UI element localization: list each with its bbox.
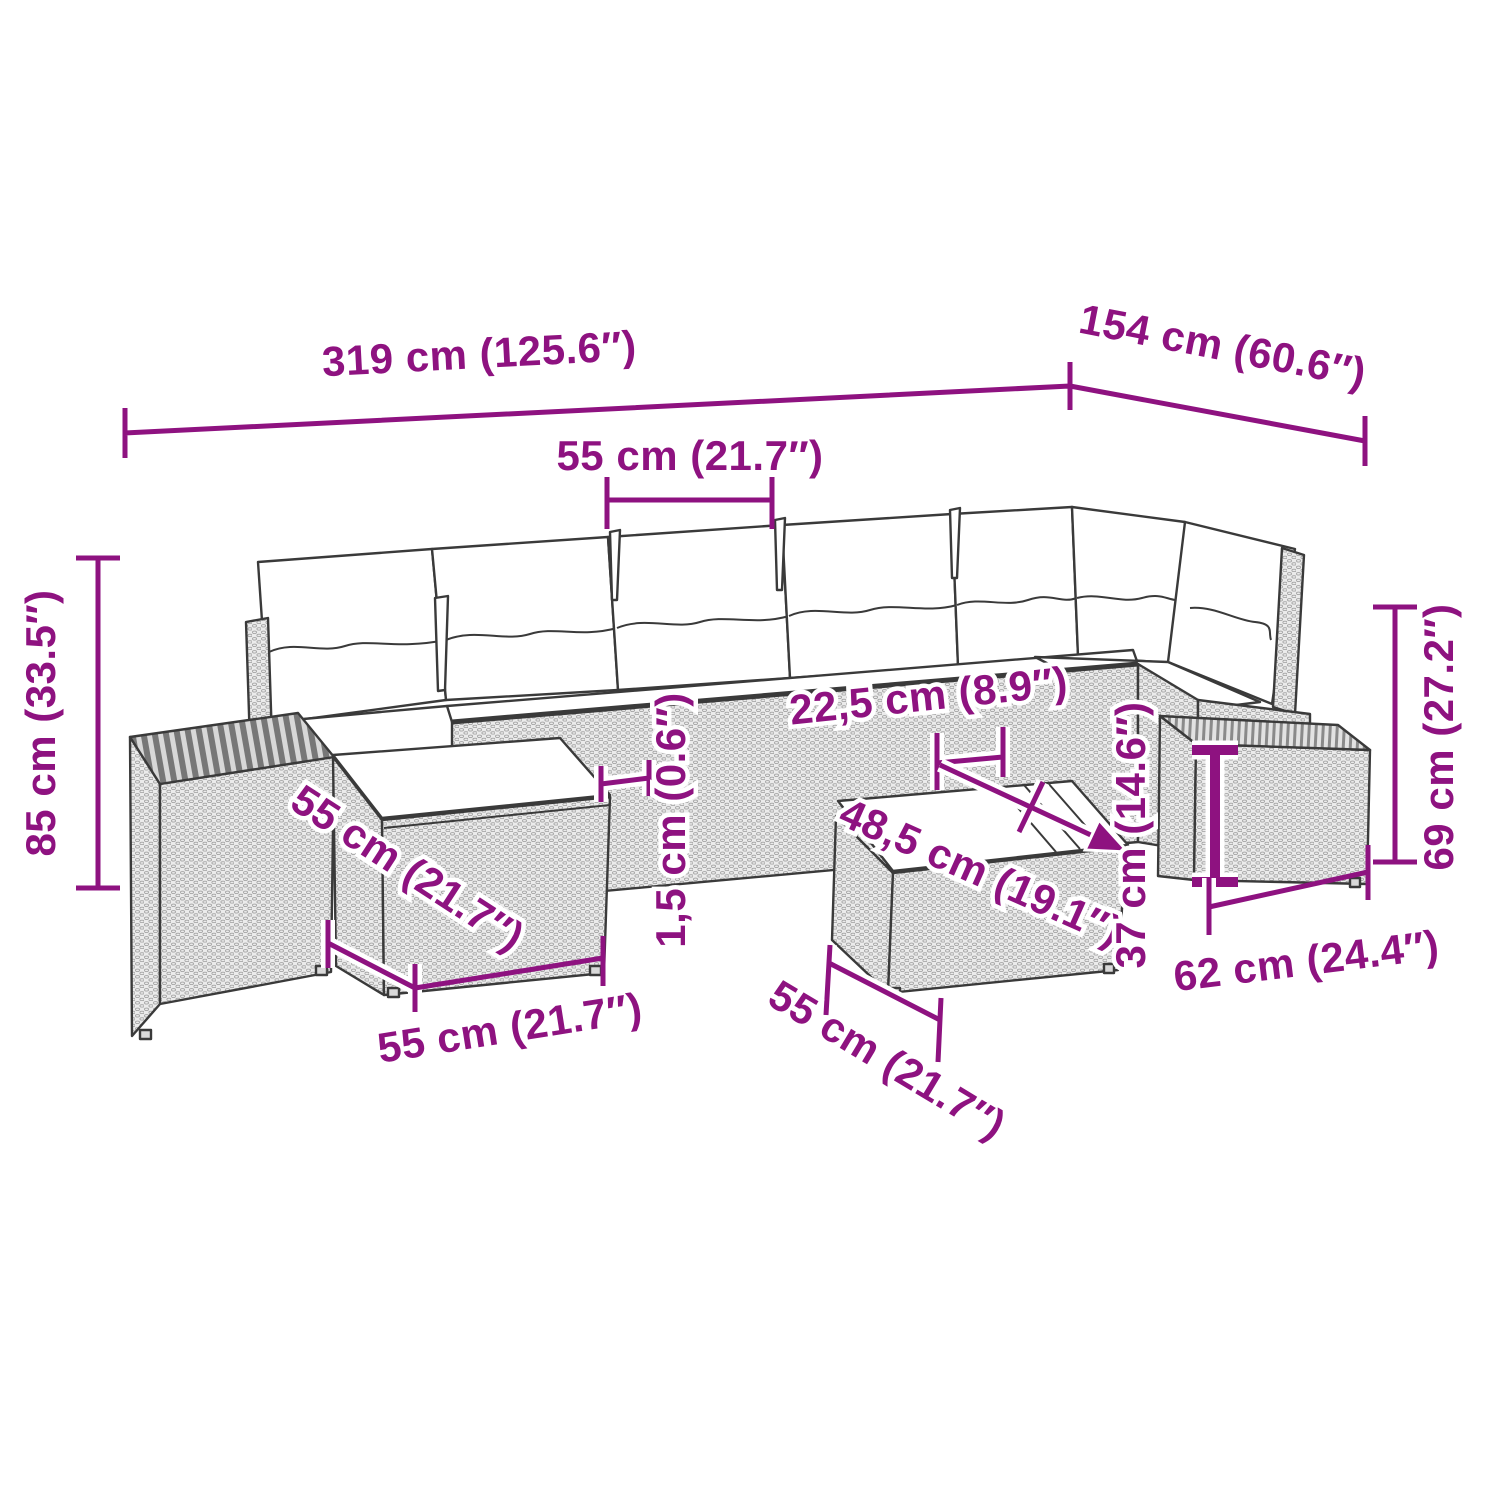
back-cushion: [952, 507, 1078, 666]
back-cushion-corner: [1072, 507, 1185, 664]
dimension-label-seat-edge: 1,5 cm (0.6″): [647, 692, 694, 947]
dimension-diagram: 319 cm (125.6″) 154 cm (60.6″) 55 cm (21…: [0, 0, 1500, 1500]
dimension-label-table-height: 37 cm (14.6″): [1107, 701, 1154, 968]
back-cushion: [782, 514, 958, 678]
back-cushion: [432, 537, 618, 700]
back-cushion: [608, 525, 790, 690]
dimension-label-total-height: 85 cm (33.5″): [17, 589, 64, 856]
diagram-canvas: 319 cm (125.6″) 154 cm (60.6″) 55 cm (21…: [0, 0, 1500, 1500]
right-end-table: [1158, 716, 1370, 887]
dimension-label-seat-width: 55 cm (21.7″): [556, 432, 823, 479]
dimension-label-side-height: 69 cm (27.2″): [1415, 603, 1462, 870]
back-cushion: [258, 549, 446, 724]
